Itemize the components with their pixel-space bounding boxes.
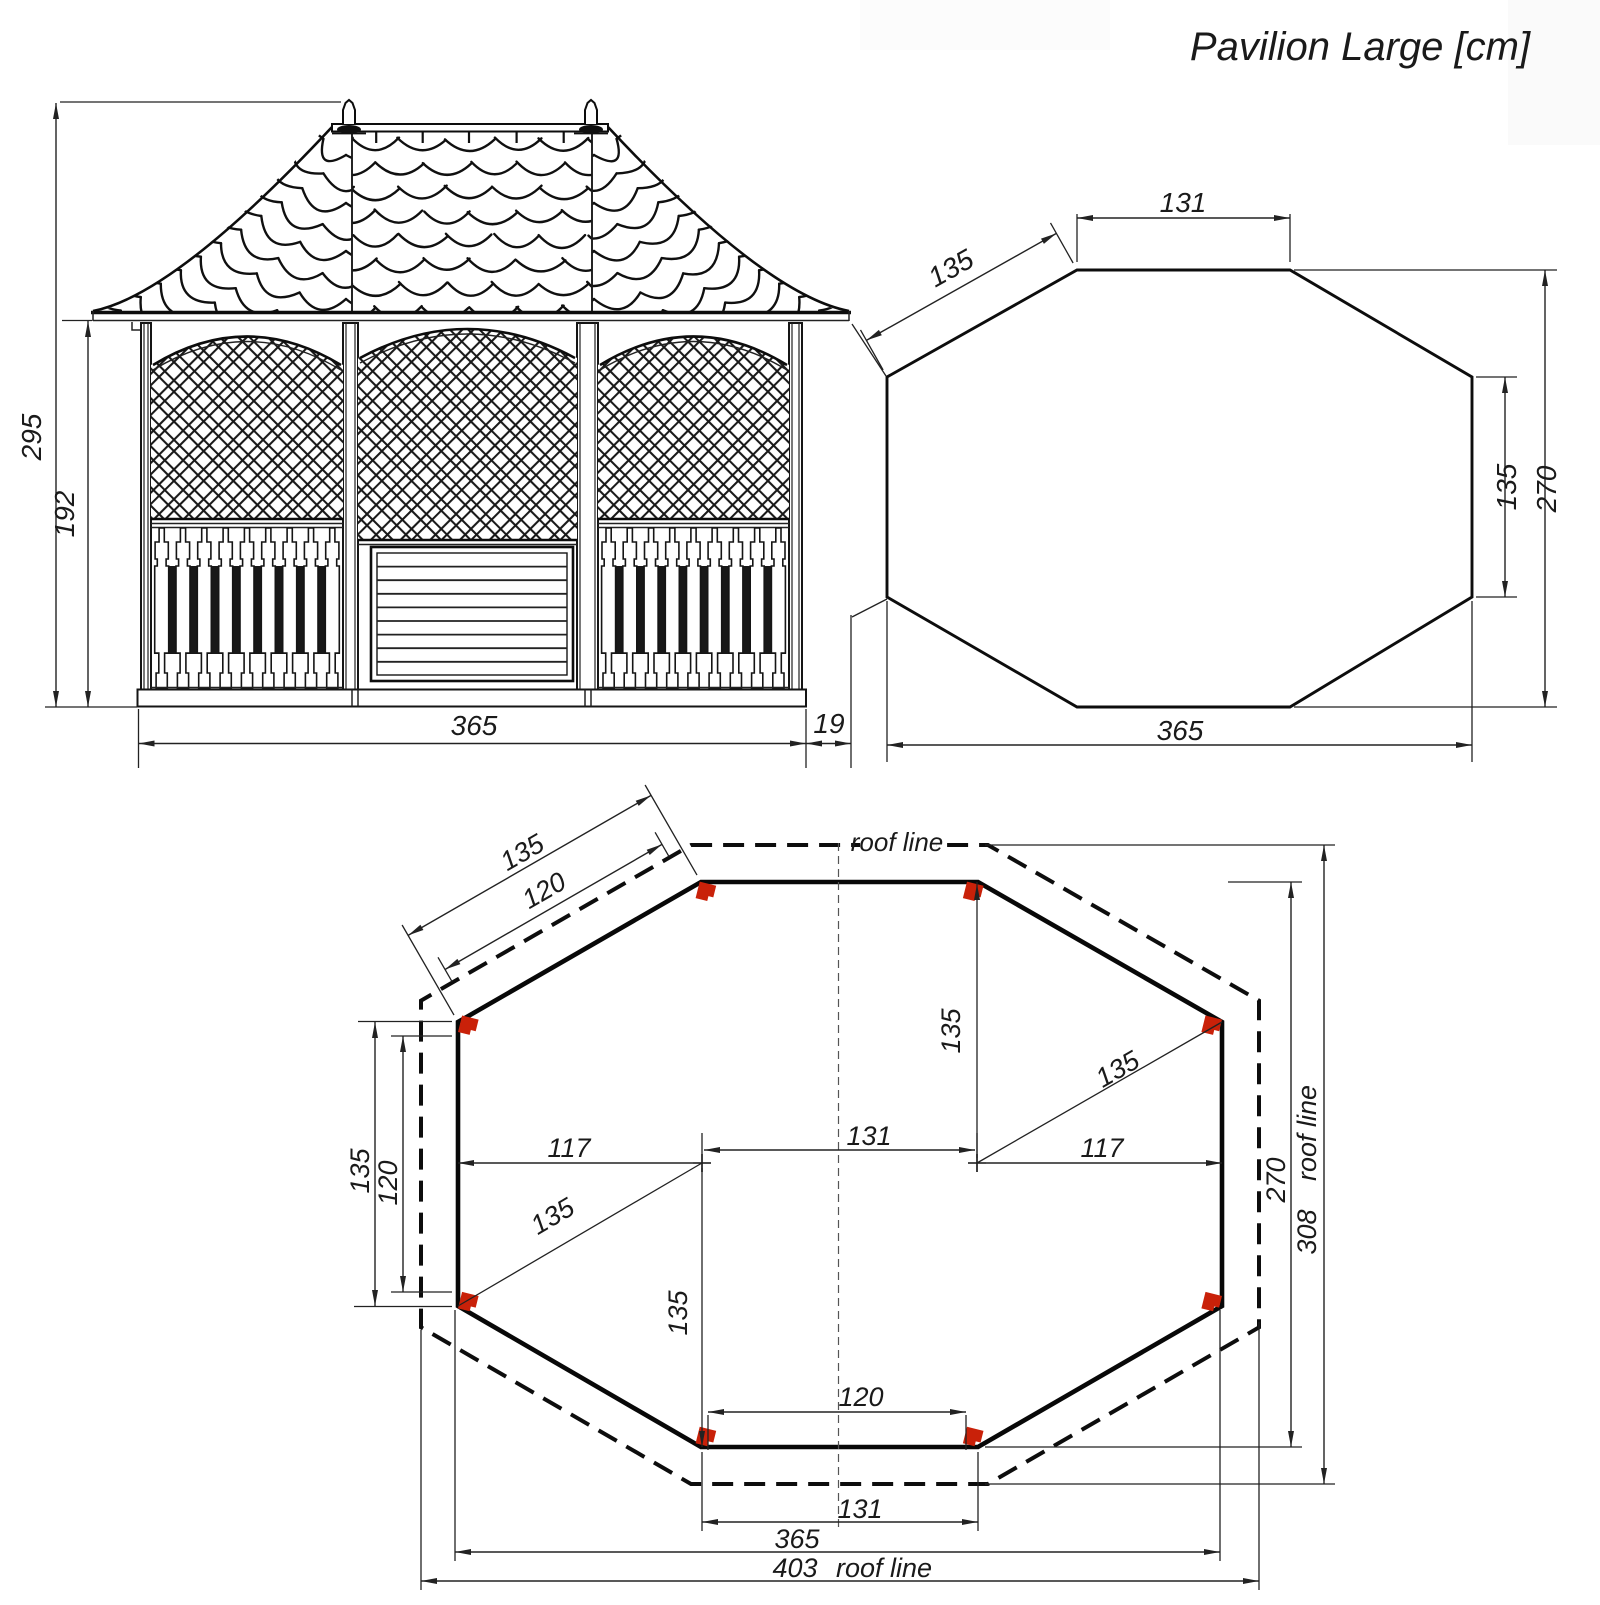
- svg-text:roof line: roof line: [836, 1553, 932, 1583]
- svg-text:270: 270: [1531, 465, 1562, 513]
- svg-text:135: 135: [663, 1289, 693, 1335]
- svg-text:135: 135: [345, 1147, 375, 1193]
- svg-text:270: 270: [1261, 1157, 1291, 1203]
- svg-text:135: 135: [1491, 463, 1522, 510]
- svg-text:308: 308: [1292, 1209, 1322, 1254]
- svg-text:192: 192: [49, 490, 80, 537]
- svg-text:117: 117: [1080, 1133, 1124, 1163]
- svg-text:131: 131: [837, 1494, 882, 1524]
- svg-text:19: 19: [813, 708, 844, 739]
- svg-text:roof line: roof line: [851, 827, 944, 857]
- svg-text:120: 120: [838, 1382, 883, 1412]
- svg-text:Pavilion Large [cm]: Pavilion Large [cm]: [1190, 25, 1531, 69]
- svg-text:135: 135: [936, 1007, 966, 1053]
- svg-text:295: 295: [16, 413, 47, 461]
- svg-text:117: 117: [547, 1133, 591, 1163]
- svg-text:131: 131: [846, 1121, 891, 1151]
- svg-text:365: 365: [774, 1524, 820, 1554]
- svg-text:131: 131: [1160, 187, 1207, 218]
- svg-text:403: 403: [772, 1553, 817, 1583]
- svg-text:120: 120: [373, 1160, 403, 1205]
- svg-text:365: 365: [1157, 715, 1204, 746]
- svg-text:roof line: roof line: [1292, 1085, 1322, 1181]
- svg-text:365: 365: [451, 710, 498, 741]
